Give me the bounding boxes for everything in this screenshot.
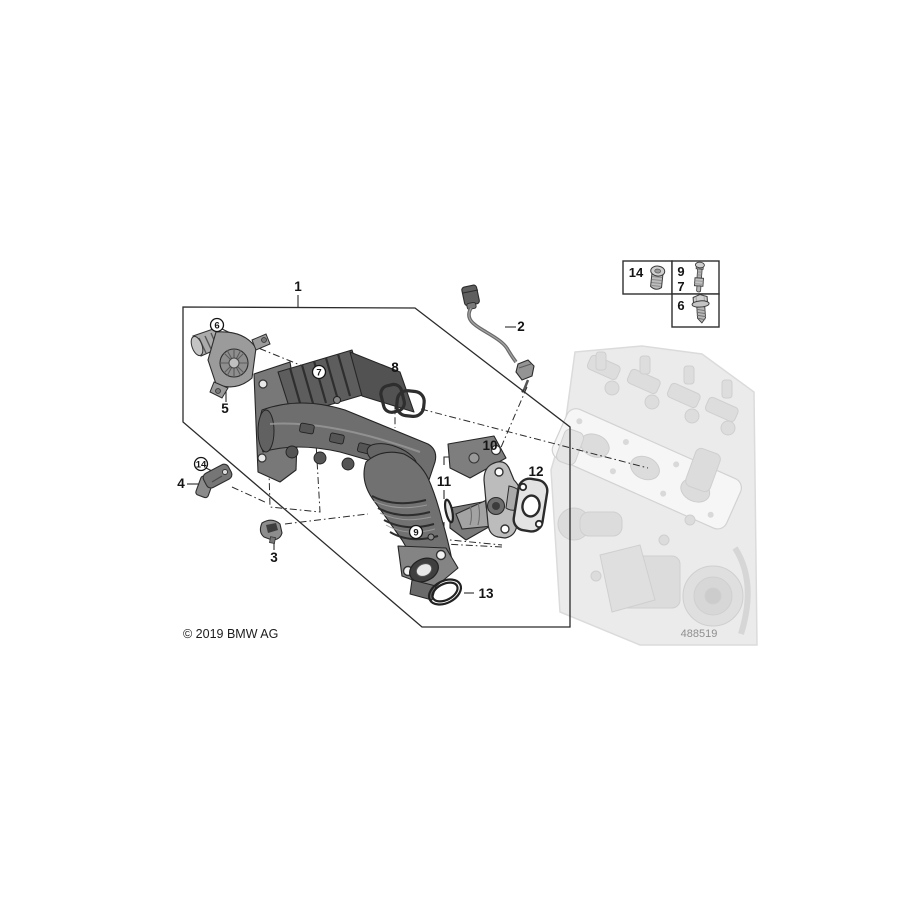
- callout-12[interactable]: 12: [528, 464, 543, 479]
- callout-9[interactable]: 9: [410, 526, 423, 539]
- legend-label-14[interactable]: 14: [629, 265, 644, 280]
- engine-block-faded-image: [549, 346, 757, 645]
- callout-6[interactable]: 6: [211, 319, 224, 332]
- callout-7[interactable]: 7: [313, 366, 326, 379]
- svg-text:14: 14: [196, 460, 207, 471]
- callout-8[interactable]: 8: [391, 360, 399, 375]
- callout-10[interactable]: 10: [482, 438, 497, 453]
- callout-11[interactable]: 11: [437, 474, 452, 489]
- clamp-drawing: [260, 520, 282, 543]
- callout-3[interactable]: 3: [270, 550, 278, 565]
- copyright-text: © 2019 BMW AG: [183, 627, 278, 641]
- bmw-parts-diagram-page: 1 2 3 4 5 6 7 8 9 10 11 12 13 14 14 9: [0, 0, 900, 900]
- svg-text:6: 6: [214, 321, 219, 332]
- callout-2[interactable]: 2: [517, 319, 525, 334]
- callout-13[interactable]: 13: [478, 586, 494, 601]
- callout-4[interactable]: 4: [177, 476, 185, 491]
- diagram-number: 488519: [681, 628, 718, 640]
- seal-ring-11: [443, 499, 454, 523]
- callout-5[interactable]: 5: [221, 401, 229, 416]
- diagram-canvas: 1 2 3 4 5 6 7 8 9 10 11 12 13 14 14 9: [0, 0, 900, 900]
- legend-label-7[interactable]: 7: [677, 279, 684, 294]
- svg-text:7: 7: [316, 368, 321, 379]
- manifold-bolt-for-7: [334, 397, 341, 404]
- legend-label-6[interactable]: 6: [677, 298, 684, 313]
- svg-text:9: 9: [413, 528, 418, 539]
- callout-1[interactable]: 1: [294, 279, 302, 294]
- fastener-legend-box: 14 9 7 6: [623, 261, 719, 327]
- legend-label-9[interactable]: 9: [677, 264, 684, 279]
- exhaust-temp-sensor-drawing: [461, 285, 534, 393]
- intake-manifold-drawing: [254, 350, 506, 600]
- callout-14[interactable]: 14: [195, 458, 208, 471]
